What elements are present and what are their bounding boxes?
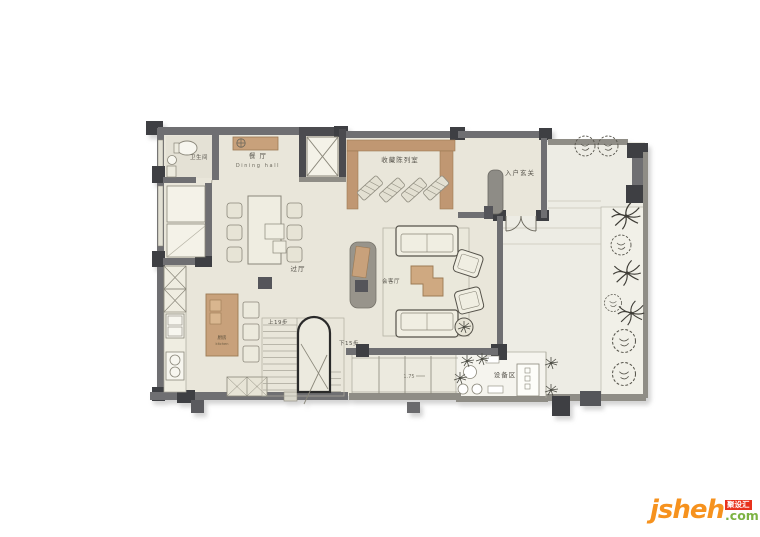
terrace-right-wall bbox=[643, 152, 648, 398]
stairs-up-label: 上19步 bbox=[268, 318, 288, 326]
watermark-tld: .com bbox=[725, 510, 759, 523]
elevator-left-wall bbox=[299, 129, 306, 182]
dining-label-en: Dining hall bbox=[236, 163, 280, 169]
dining-label-cn: 餐 厅 bbox=[249, 151, 267, 160]
bay-dimension-label: 1.75 bbox=[403, 374, 414, 380]
bathroom-bottom-wall bbox=[163, 177, 196, 183]
collection-label: 收藏陈列室 bbox=[381, 155, 419, 164]
side-table bbox=[265, 224, 284, 239]
living-room: 会客厅 bbox=[382, 226, 485, 337]
bathroom-right-wall bbox=[212, 134, 219, 180]
storage-right-wall bbox=[205, 183, 212, 262]
elevator-door-wall bbox=[299, 177, 346, 182]
terrace-top-wall bbox=[548, 139, 628, 145]
door-notch bbox=[284, 392, 297, 401]
storage-panel bbox=[167, 186, 205, 222]
foyer-right-wall bbox=[541, 138, 547, 218]
kitchen-label-en: kitchen bbox=[216, 342, 229, 346]
equipment-box-icon bbox=[488, 386, 503, 393]
sink-icon bbox=[168, 156, 177, 165]
wall-stub bbox=[407, 402, 420, 413]
equipment-unit-icon bbox=[464, 366, 477, 379]
elevator-right-wall bbox=[339, 129, 346, 182]
column bbox=[552, 396, 570, 416]
toilet-tank bbox=[174, 143, 179, 153]
window bbox=[158, 186, 163, 246]
arched-niche bbox=[298, 317, 330, 392]
living-label: 会客厅 bbox=[382, 277, 400, 285]
living-right-wall bbox=[497, 216, 503, 354]
bay-bottom-wall bbox=[349, 393, 461, 400]
wall-segment bbox=[345, 131, 457, 138]
column bbox=[580, 391, 601, 406]
equipment-bottom-wall bbox=[456, 396, 548, 402]
stairs-down-label: 下15步 bbox=[339, 340, 359, 347]
bottom-cabinet bbox=[227, 377, 267, 396]
vanity-cabinet bbox=[167, 166, 176, 177]
column bbox=[195, 256, 212, 267]
sofa-top bbox=[396, 226, 458, 256]
equipment-closet bbox=[517, 364, 539, 396]
wall-segment bbox=[158, 127, 302, 135]
wall-stub bbox=[191, 400, 204, 413]
round-side-table bbox=[455, 318, 473, 336]
equipment-unit-icon bbox=[458, 384, 468, 394]
window bbox=[158, 140, 163, 170]
kitchen-sink bbox=[166, 314, 184, 338]
equipment-label: 设备区 bbox=[494, 370, 517, 379]
console-accent bbox=[484, 206, 493, 219]
floor-accent-square bbox=[258, 277, 272, 289]
side-table bbox=[273, 241, 286, 253]
storage-room bbox=[167, 186, 205, 257]
equipment-box-icon bbox=[486, 356, 499, 363]
floor-plan-drawing: 卫生间 餐 厅 Dining hall 收藏陈列室 bbox=[0, 0, 760, 537]
island-stools bbox=[243, 302, 259, 362]
stove bbox=[166, 352, 184, 380]
console-piano bbox=[350, 242, 376, 308]
hallway-label: 过厅 bbox=[291, 264, 306, 273]
plant-pot-icon bbox=[237, 139, 245, 147]
sofa-bottom bbox=[396, 310, 458, 337]
display-cabinet-top bbox=[347, 140, 455, 151]
site-watermark: jsheh 聚设汇 .com bbox=[650, 499, 759, 522]
wall-segment bbox=[458, 131, 548, 138]
floor-plan-page: 卫生间 餐 厅 Dining hall 收藏陈列室 bbox=[0, 0, 760, 537]
equipment-unit-icon bbox=[472, 384, 482, 394]
kitchen-label-cn: 厨房 bbox=[218, 334, 227, 341]
bathroom-label: 卫生间 bbox=[190, 153, 208, 161]
toilet-icon bbox=[177, 141, 197, 155]
kitchen-island: 厨房 kitchen bbox=[206, 294, 238, 356]
display-cabinet-left bbox=[347, 151, 358, 209]
foyer-label: 入户玄关 bbox=[505, 168, 535, 177]
watermark-brand: jsheh bbox=[650, 499, 724, 522]
